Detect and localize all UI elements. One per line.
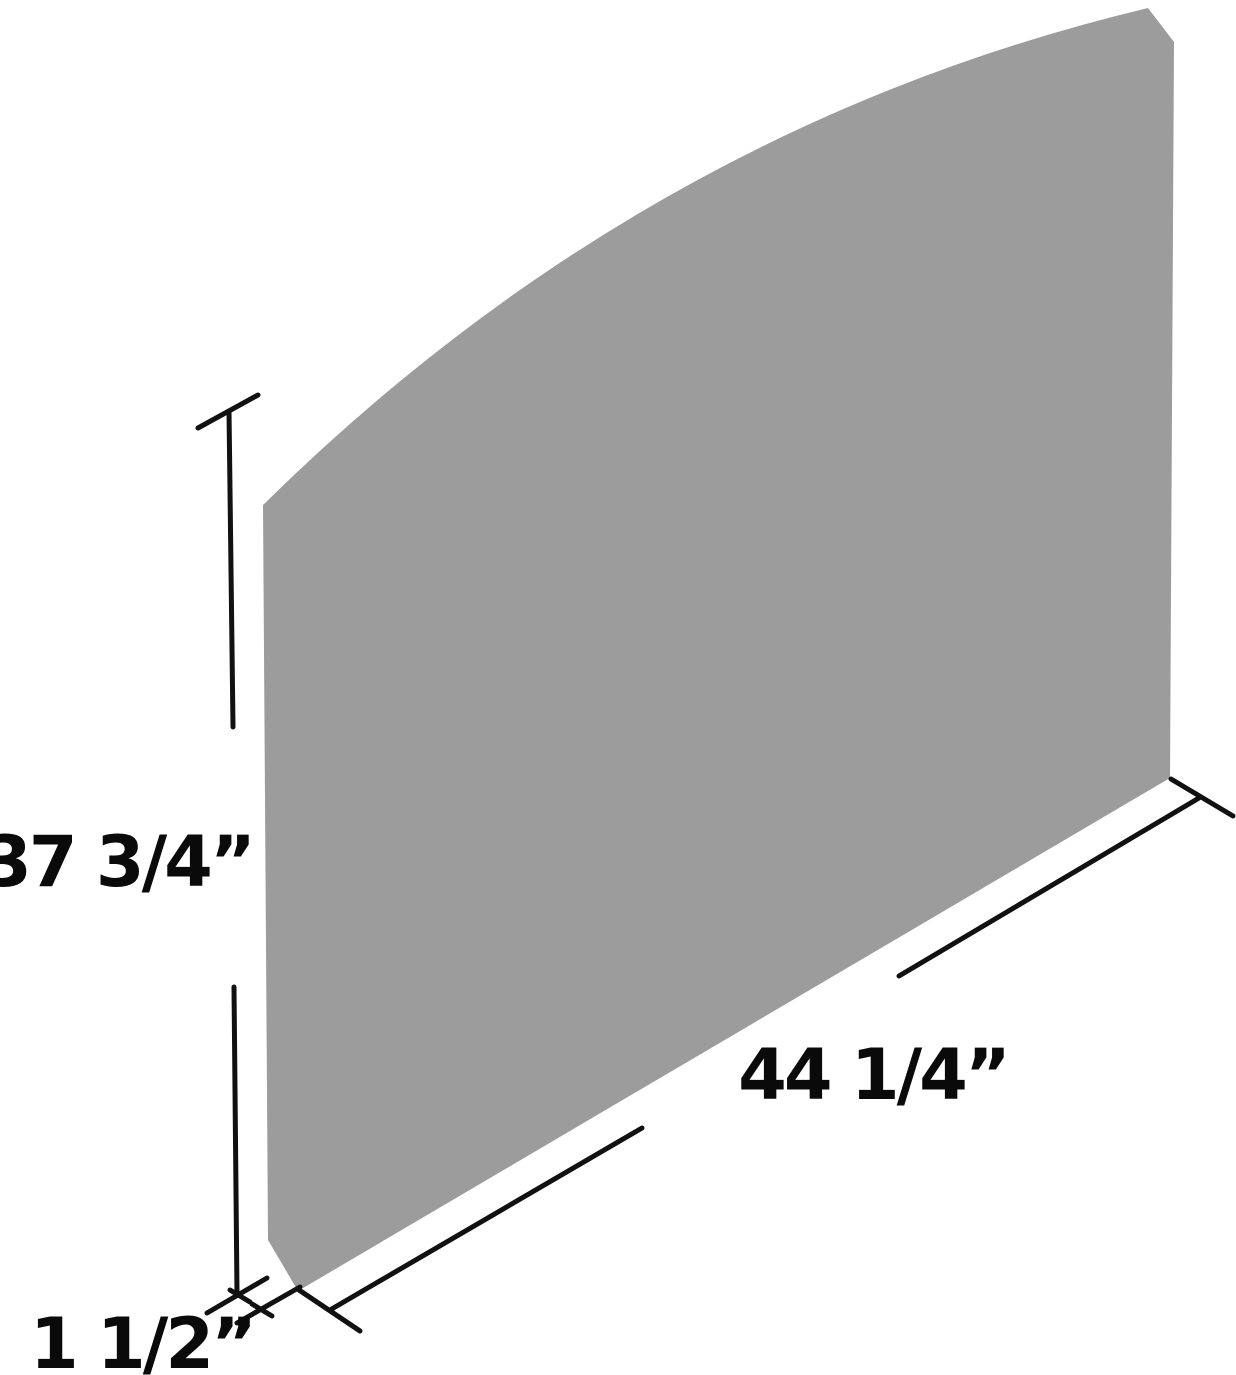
- height-dimension-line-lower: [234, 987, 237, 1294]
- dimension-diagram: 37 3/4” 44 1/4” 1 1/2”: [0, 0, 1236, 1375]
- panel-silhouette: [263, 8, 1174, 1291]
- depth-dimension-label: 1 1/2”: [30, 1303, 254, 1375]
- width-dimension-label: 44 1/4”: [738, 1034, 1008, 1116]
- dimension-diagram-canvas: 37 3/4” 44 1/4” 1 1/2”: [0, 0, 1236, 1375]
- height-dimension-line-upper: [229, 411, 233, 727]
- height-dimension-label: 37 3/4”: [0, 821, 253, 903]
